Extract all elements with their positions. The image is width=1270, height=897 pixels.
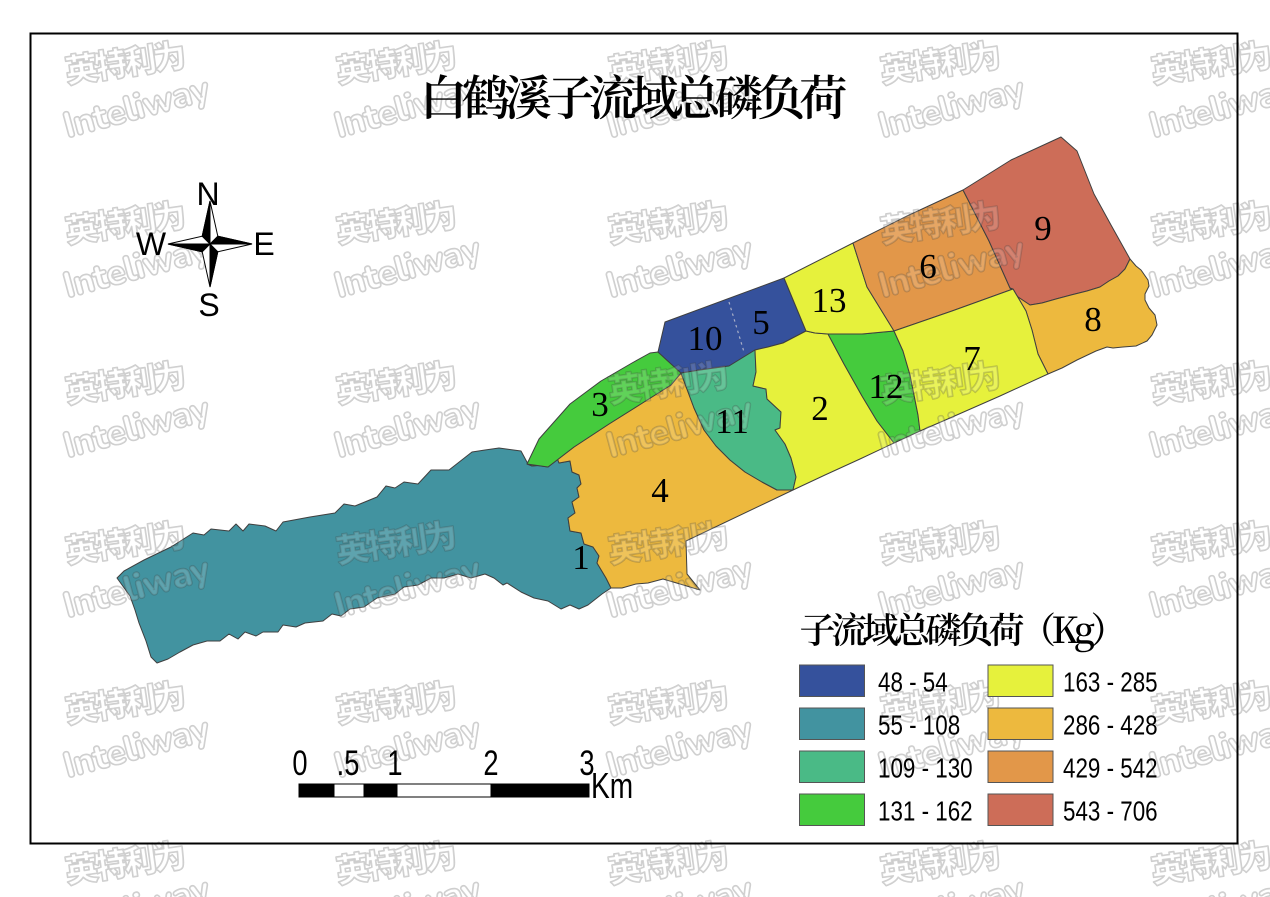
svg-text:Km: Km xyxy=(591,766,633,806)
svg-text:W: W xyxy=(136,226,167,262)
svg-text:2: 2 xyxy=(483,744,498,783)
svg-text:11: 11 xyxy=(715,402,749,441)
svg-text:6: 6 xyxy=(919,247,937,286)
svg-text:.5: .5 xyxy=(337,744,360,783)
svg-text:1: 1 xyxy=(572,538,590,577)
svg-text:13: 13 xyxy=(812,281,847,320)
svg-text:5: 5 xyxy=(752,303,770,342)
svg-text:S: S xyxy=(198,287,219,323)
svg-text:2: 2 xyxy=(811,389,829,428)
svg-text:1: 1 xyxy=(387,744,402,783)
svg-text:543 - 706: 543 - 706 xyxy=(1063,796,1158,827)
svg-text:109 - 130: 109 - 130 xyxy=(878,753,973,784)
svg-text:429 - 542: 429 - 542 xyxy=(1063,753,1158,784)
svg-text:0: 0 xyxy=(292,744,307,783)
svg-text:9: 9 xyxy=(1034,209,1052,248)
svg-text:131 - 162: 131 - 162 xyxy=(878,796,973,827)
svg-text:3: 3 xyxy=(591,385,609,424)
svg-text:4: 4 xyxy=(651,471,669,510)
svg-text:8: 8 xyxy=(1084,300,1102,339)
svg-text:55 - 108: 55 - 108 xyxy=(878,710,960,741)
svg-text:12: 12 xyxy=(869,367,904,406)
svg-text:163 - 285: 163 - 285 xyxy=(1063,667,1158,698)
svg-text:E: E xyxy=(253,226,274,262)
svg-text:10: 10 xyxy=(688,319,723,358)
svg-text:7: 7 xyxy=(963,339,981,378)
svg-text:N: N xyxy=(196,176,219,212)
svg-text:48 - 54: 48 - 54 xyxy=(878,667,948,698)
svg-text:286 - 428: 286 - 428 xyxy=(1063,710,1158,741)
